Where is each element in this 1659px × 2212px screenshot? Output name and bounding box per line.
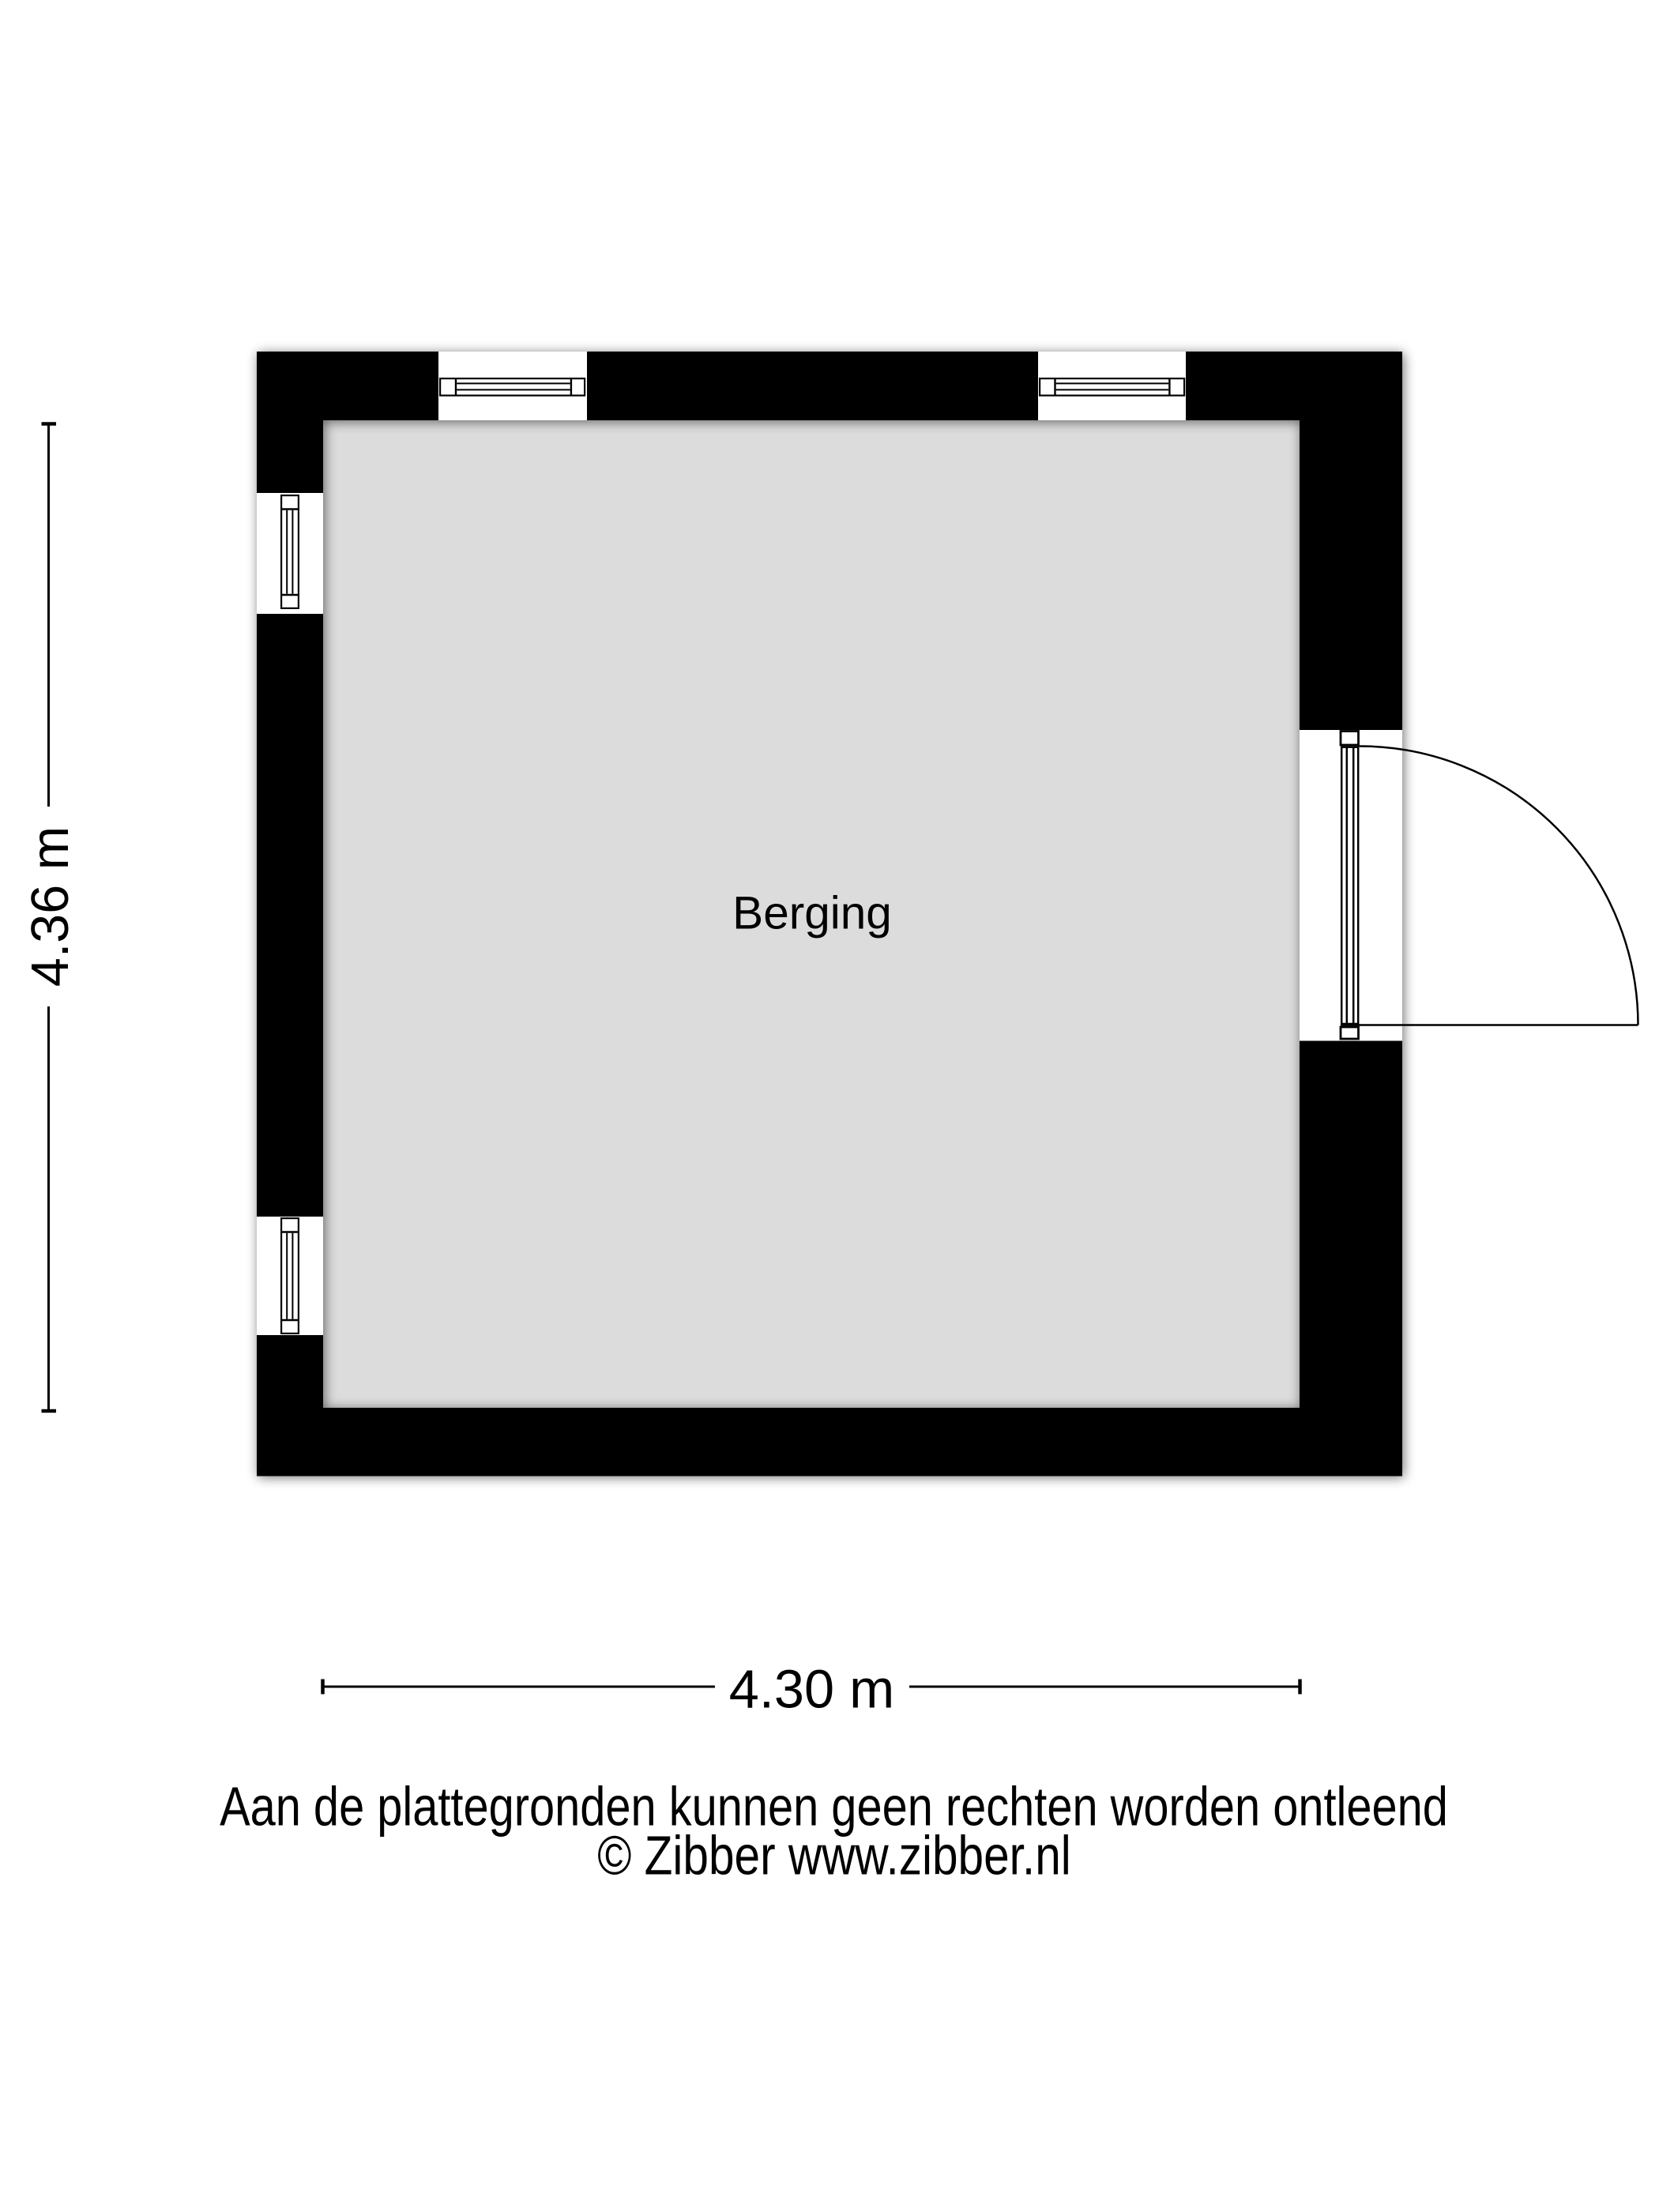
svg-text:Berging: Berging (732, 888, 892, 939)
svg-text:4.36 m: 4.36 m (21, 826, 80, 987)
svg-text:4.30 m: 4.30 m (729, 1659, 894, 1720)
svg-text:© Zibber www.zibber.nl: © Zibber www.zibber.nl (597, 1824, 1071, 1886)
